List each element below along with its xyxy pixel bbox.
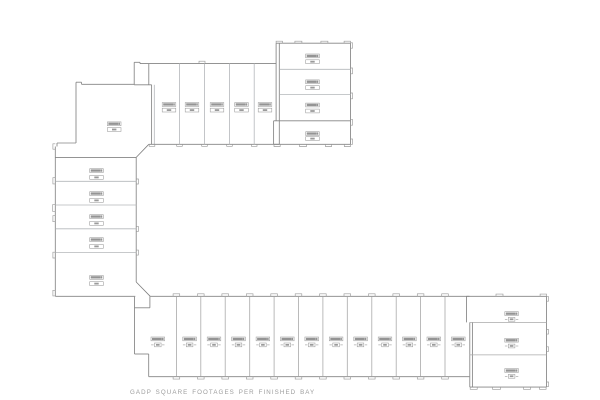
svg-text:GADP SQUARE FOOTAGES PER FINIS: GADP SQUARE FOOTAGES PER FINISHED BAY [130, 389, 315, 396]
